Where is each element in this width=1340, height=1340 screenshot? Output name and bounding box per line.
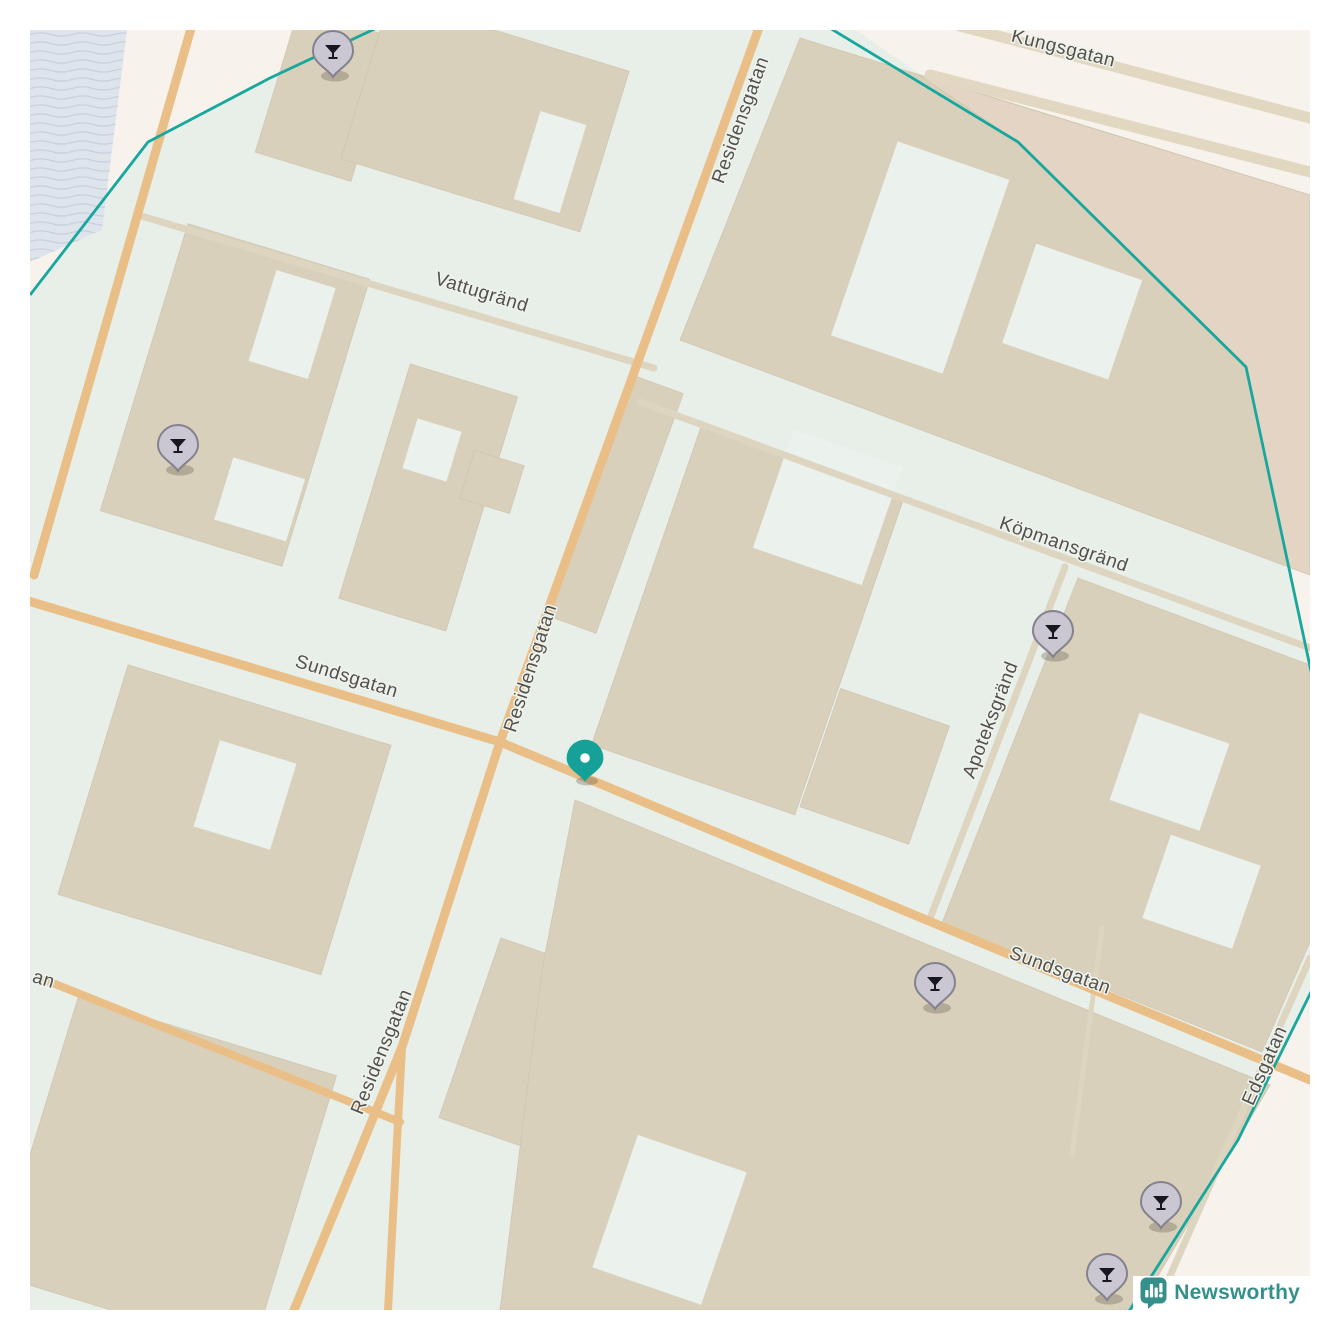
brand-name: Newsworthy bbox=[1174, 1281, 1300, 1305]
map-svg: KungsgatanVattugrändResidensgatanResiden… bbox=[30, 30, 1310, 1310]
page-frame: KungsgatanVattugrändResidensgatanResiden… bbox=[0, 0, 1340, 1340]
map-canvas[interactable]: KungsgatanVattugrändResidensgatanResiden… bbox=[30, 30, 1310, 1310]
newsworthy-logo-icon bbox=[1140, 1277, 1167, 1310]
attribution-badge[interactable]: Newsworthy bbox=[1133, 1276, 1310, 1310]
